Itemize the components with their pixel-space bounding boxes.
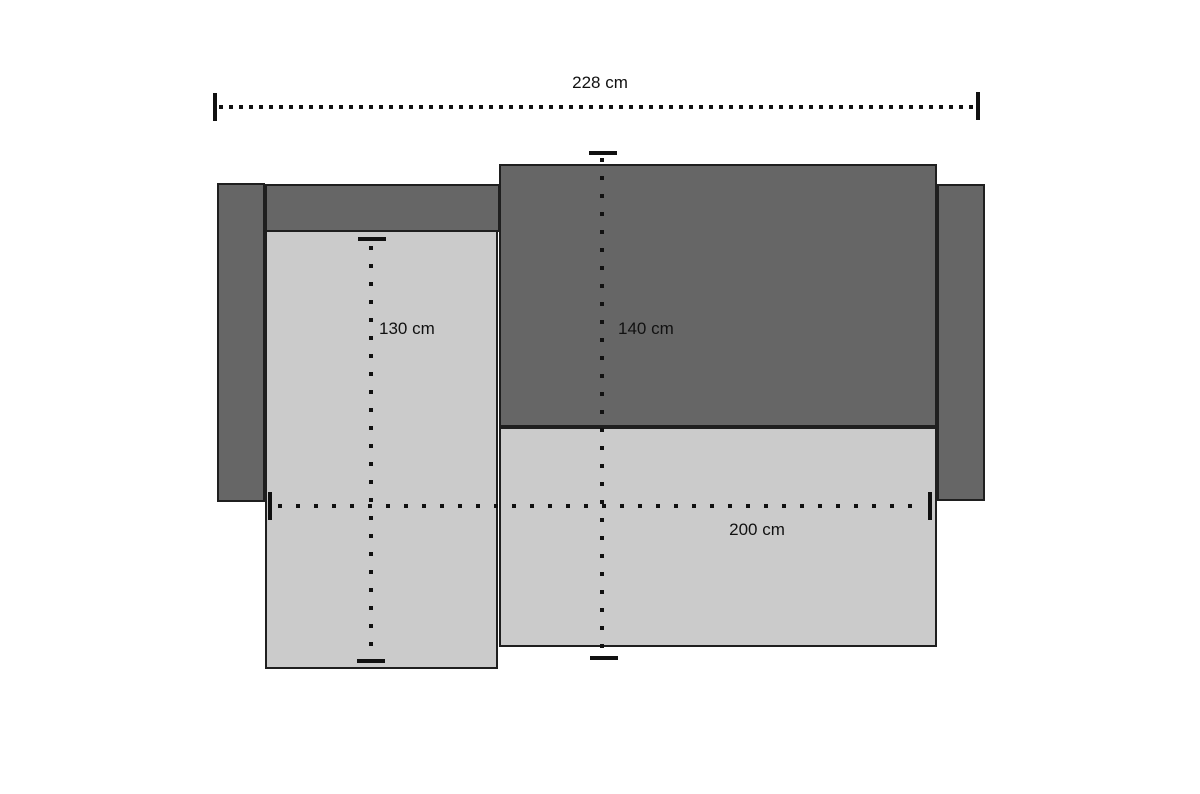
dimension-tick-top xyxy=(589,151,617,155)
dimension-dotted-line xyxy=(278,504,924,508)
right-armrest-panel xyxy=(937,184,985,501)
overall-width-label: 228 cm xyxy=(572,74,628,93)
dimension-dotted-line xyxy=(600,158,604,650)
inner-width-label: 200 cm xyxy=(729,521,785,540)
dimension-tick-top xyxy=(358,237,386,241)
dimension-tick-bottom xyxy=(357,659,385,663)
dimension-dotted-line xyxy=(369,246,373,655)
seat-back-panel xyxy=(499,164,937,427)
sofa-dimension-diagram: 228 cm 130 cm 140 cm 200 cm xyxy=(0,0,1200,794)
dimension-dotted-line xyxy=(219,105,976,109)
backrest-panel xyxy=(265,184,500,232)
dimension-end-cap-left xyxy=(268,492,272,520)
dimension-tick-bottom xyxy=(590,656,618,660)
chaise-length-label: 130 cm xyxy=(379,320,435,339)
dimension-end-cap-left xyxy=(213,93,217,121)
dimension-end-cap-right xyxy=(976,92,980,120)
seat-panel xyxy=(499,427,937,647)
depth-label: 140 cm xyxy=(618,320,674,339)
chaise-panel xyxy=(265,230,498,669)
left-armrest-panel xyxy=(217,183,265,502)
dimension-end-cap-right xyxy=(928,492,932,520)
